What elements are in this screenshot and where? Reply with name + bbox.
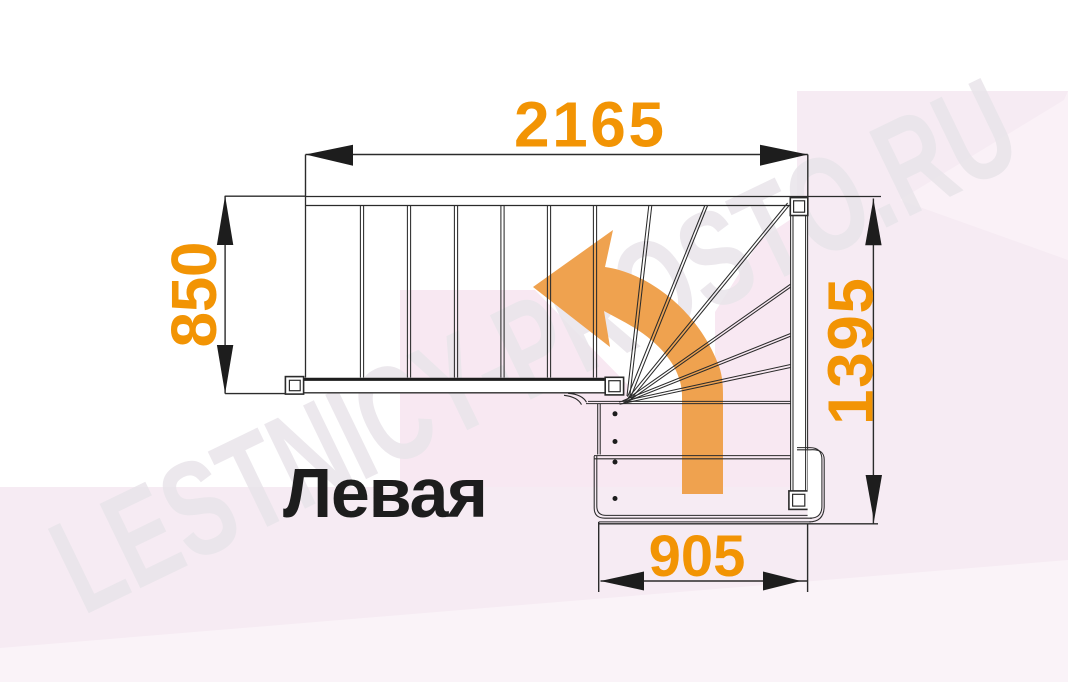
svg-text:1395: 1395	[815, 278, 887, 425]
svg-text:850: 850	[158, 242, 230, 348]
svg-text:905: 905	[649, 524, 746, 589]
svg-text:Левая: Левая	[283, 454, 488, 532]
